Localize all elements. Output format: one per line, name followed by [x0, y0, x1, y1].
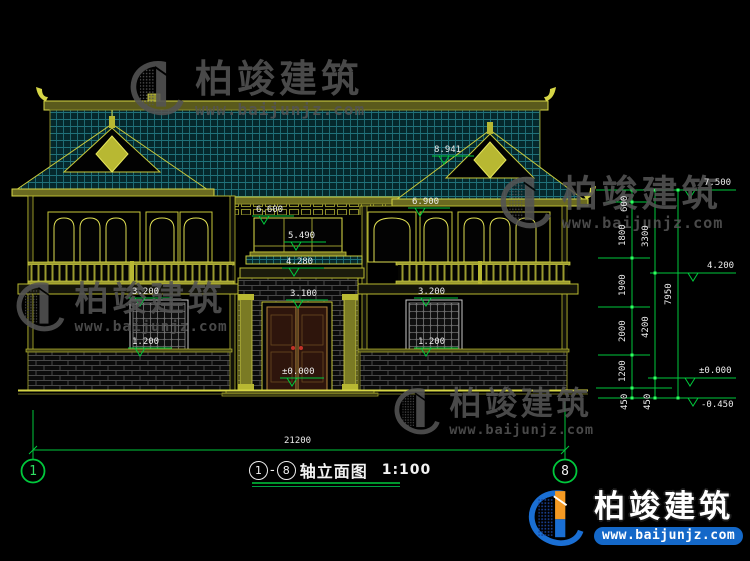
level-4200: 4.200 — [707, 262, 734, 271]
title-axis-start: 1 — [249, 461, 268, 480]
level-7500: 7.500 — [704, 179, 731, 188]
brand-logo: 柏竣建筑 www.baijunjz.com — [528, 486, 743, 550]
chain-450-b: 450 — [643, 394, 653, 410]
watermark-brand-text: 柏竣建筑 — [449, 386, 594, 420]
chain-1900: 1900 — [618, 274, 628, 296]
chain-450-a: 450 — [620, 394, 630, 410]
watermark-bottom: 柏竣建筑 www.baijunjz.com — [394, 384, 594, 438]
title-axis-end: 8 — [277, 461, 296, 480]
watermark-left: 柏竣建筑 www.baijunjz.com — [16, 278, 228, 336]
brand-url-badge: www.baijunjz.com — [594, 527, 743, 545]
chain-4200: 4200 — [641, 316, 651, 338]
watermark-brand-text: 柏竣建筑 — [75, 280, 228, 316]
marker-porch-top: 4.280 — [286, 258, 313, 267]
watermark-brand-text: 柏竣建筑 — [195, 59, 365, 99]
title-scale: 1:100 — [382, 462, 432, 478]
marker-right-window-sill: 1.200 — [418, 338, 445, 347]
marker-left-window-top: 3.200 — [132, 288, 159, 297]
drawing-title: 1 - 8 轴立面图 1:100 — [249, 458, 431, 482]
axis-bubble-8: 8 — [553, 465, 577, 478]
marker-center-window: 5.490 — [288, 232, 315, 241]
marker-wing-eave: 6.900 — [412, 198, 439, 207]
chain-7950: 7950 — [664, 283, 674, 305]
overall-width-dim: 21200 — [284, 437, 311, 446]
level-zero: ±0.000 — [699, 367, 732, 376]
watermark-top: 柏竣建筑 www.baijunjz.com — [130, 56, 365, 120]
marker-center-eave: 6.600 — [256, 206, 283, 215]
baijun-logo-color-icon — [528, 486, 586, 550]
level-ground: -0.450 — [701, 401, 734, 410]
watermark-brand-text: 柏竣建筑 — [562, 174, 724, 212]
cad-elevation-screenshot: 8.941 6.600 5.490 6.900 4.280 3.100 ±0.0… — [0, 0, 750, 561]
watermark-url-text: www.baijunjz.com — [195, 101, 365, 118]
baijun-logo-icon — [500, 172, 553, 233]
chain-600: 600 — [620, 196, 630, 212]
baijun-logo-icon — [130, 56, 186, 120]
marker-ridge: 8.941 — [434, 146, 461, 155]
watermark-right: 柏竣建筑 www.baijunjz.com — [500, 172, 723, 233]
brand-name-text: 柏竣建筑 — [594, 491, 743, 524]
chain-1200: 1200 — [618, 360, 628, 382]
title-separator: - — [270, 463, 275, 478]
baijun-logo-icon — [394, 384, 442, 438]
chain-3300: 3300 — [641, 225, 651, 247]
title-name: 轴立面图 — [300, 458, 368, 482]
baijun-logo-icon — [16, 278, 66, 336]
marker-left-window-sill: 1.200 — [132, 338, 159, 347]
marker-entry-level: ±0.000 — [282, 368, 315, 377]
marker-right-window-top: 3.200 — [418, 288, 445, 297]
watermark-url-text: www.baijunjz.com — [75, 318, 228, 333]
chain-1800: 1800 — [618, 224, 628, 246]
marker-door-top: 3.100 — [290, 290, 317, 299]
axis-bubble-1: 1 — [21, 465, 45, 478]
watermark-url-text: www.baijunjz.com — [449, 422, 594, 436]
chain-2000: 2000 — [618, 320, 628, 342]
